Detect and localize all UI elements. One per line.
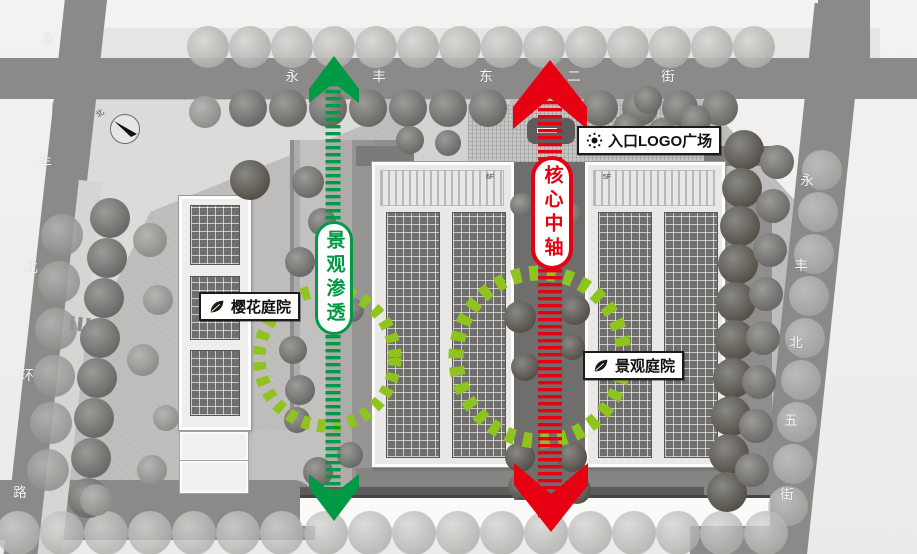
street-char-right: 永 <box>800 169 814 189</box>
road-top <box>0 58 917 99</box>
street-char-right: 北 <box>789 331 803 351</box>
tower-annex <box>180 461 248 493</box>
green-axis-pill: 景观渗透 <box>315 221 353 335</box>
street-char-right: 街 <box>780 483 794 503</box>
tower-annex <box>180 432 248 461</box>
leaf-icon <box>208 298 226 316</box>
street-char-left: 北 <box>24 256 38 276</box>
street-char-top: 二 <box>567 65 581 85</box>
strip-edge-band <box>352 140 374 500</box>
leaf-icon <box>592 357 610 375</box>
street-char-left: 丰 <box>38 151 52 171</box>
east-roof-panel <box>664 212 718 458</box>
site-plan-diagram: 6F 5F 景观渗透 核心中轴 入口LOGO广场 <box>0 0 917 554</box>
street-char-top: 东 <box>479 65 493 85</box>
north-sidewalk <box>80 28 880 60</box>
street-char-top: 丰 <box>372 65 386 85</box>
sakura-courtyard-label: 樱花庭院 <box>199 292 300 321</box>
green-axis-label: 景观渗透 <box>321 230 348 326</box>
street-char-right: 五 <box>784 409 798 429</box>
sun-icon <box>586 132 603 149</box>
entrance-plaza-label-text: 入口LOGO广场 <box>608 130 712 151</box>
floor-tag-middle: 6F <box>486 174 494 181</box>
core-axis-pill: 核心中轴 <box>531 156 573 270</box>
street-char-top: 永 <box>285 65 299 85</box>
core-axis-label: 核心中轴 <box>539 165 566 261</box>
street-char-left: 永 <box>41 28 55 48</box>
street-char-left: 环 <box>20 364 34 384</box>
floor-tag-east: 5F <box>603 174 611 181</box>
landscape-courtyard-label-text: 景观庭院 <box>615 355 675 376</box>
tower-roof-panel <box>190 205 240 265</box>
east-roof-panel <box>598 212 652 458</box>
sakura-courtyard-label-text: 樱花庭院 <box>231 296 291 317</box>
street-char-top: 街 <box>661 65 675 85</box>
north-compass-icon <box>110 114 140 144</box>
tower-roof-panel <box>190 350 240 416</box>
east-building-roof-louvers <box>593 170 715 206</box>
entrance-plaza-label: 入口LOGO广场 <box>577 126 721 155</box>
middle-roof-panel <box>386 212 440 458</box>
landscape-courtyard-label: 景观庭院 <box>583 351 684 380</box>
street-char-left: 路 <box>13 481 27 501</box>
middle-roof-panel <box>452 212 506 458</box>
entrance-water-detail <box>537 128 557 133</box>
street-char-right: 丰 <box>794 254 808 274</box>
